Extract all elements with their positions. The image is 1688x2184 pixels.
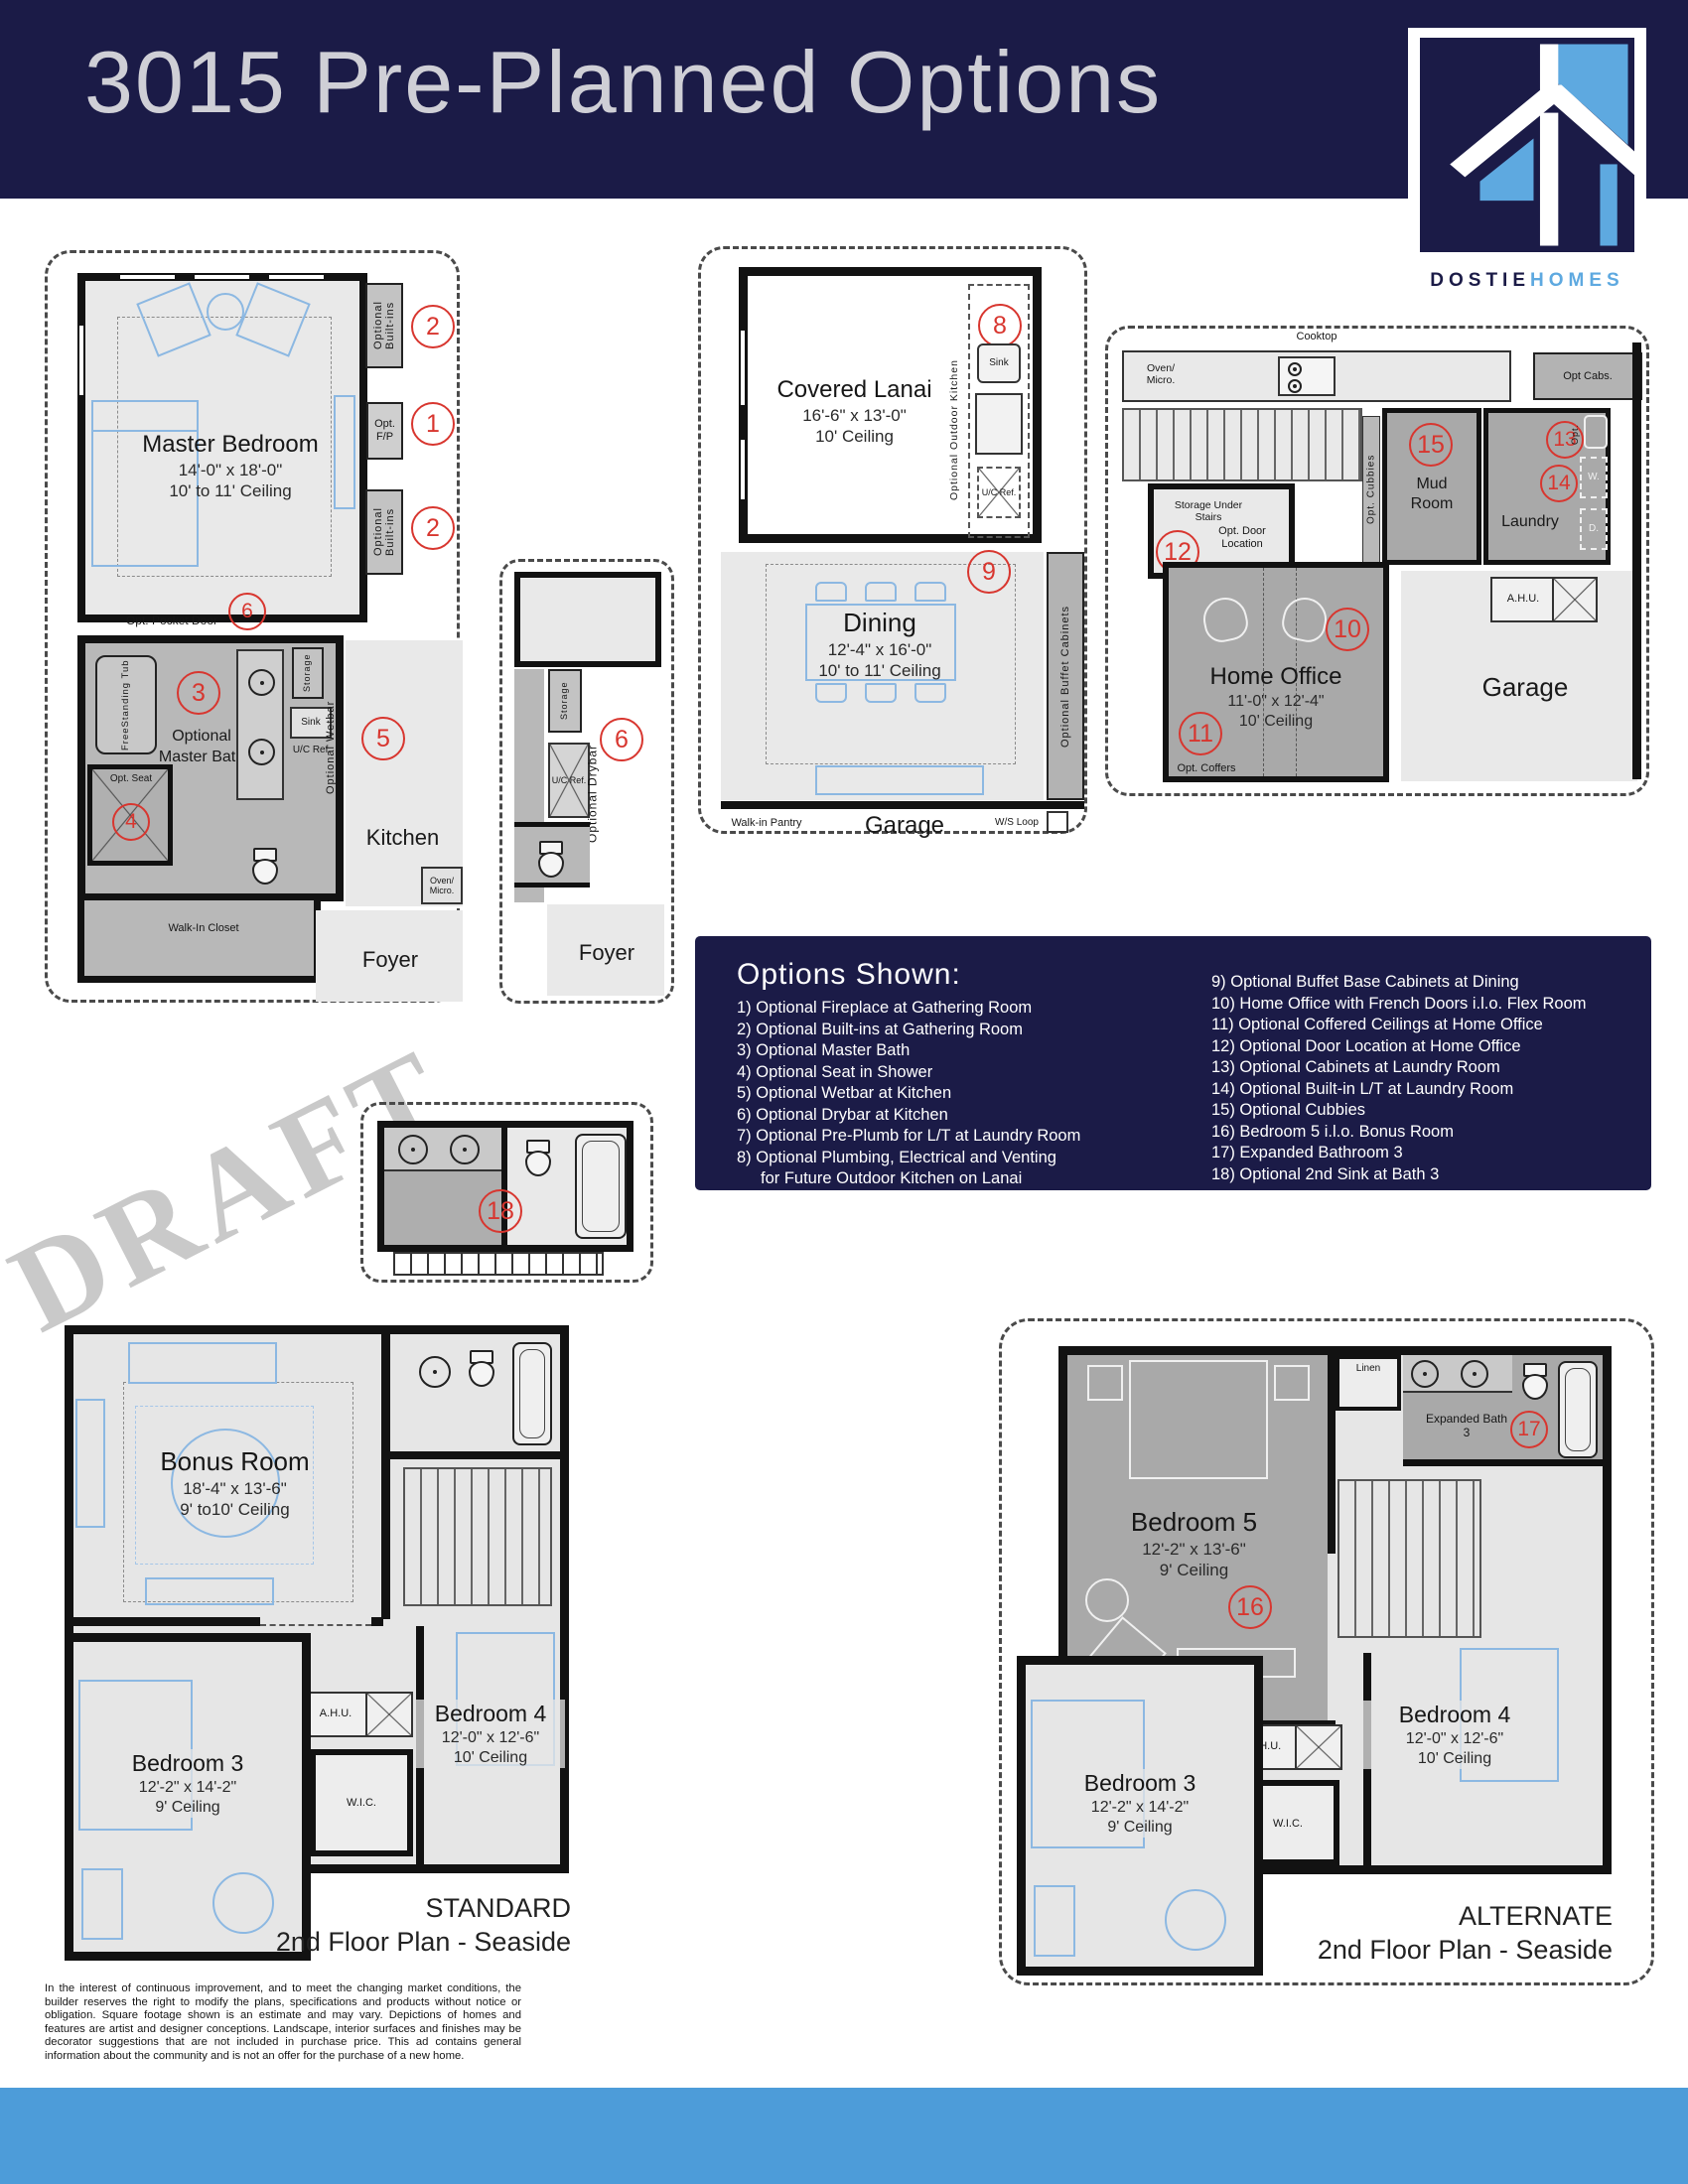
ahu-label: A.H.U. xyxy=(306,1707,365,1720)
laundry-label: Laundry xyxy=(1488,512,1572,532)
opt-cabs: Opt Cabs. xyxy=(1533,352,1642,400)
opt-door-location-label: Opt. Door Location xyxy=(1207,525,1277,550)
wic-room: W.I.C. xyxy=(310,1749,413,1856)
toilet xyxy=(469,1350,492,1386)
option-item: 4) Optional Seat in Shower xyxy=(737,1062,1080,1084)
footer-bar xyxy=(0,2088,1688,2184)
wall xyxy=(381,1334,390,1619)
wall xyxy=(1328,1355,1336,1554)
room-dims: 12'-2" x 14'-2" xyxy=(83,1778,292,1798)
opt-coffers-label: Opt. Coffers xyxy=(1175,762,1238,775)
plan-master-suite: Master Bedroom 14'-0" x 18'-0" 10' to 11… xyxy=(45,250,460,1003)
option-badge-4: 4 xyxy=(112,803,150,841)
window xyxy=(120,273,175,281)
window xyxy=(739,440,747,499)
room-dims: 12'-0" x 12'-6" xyxy=(416,1728,565,1748)
option-item: 11) Optional Coffered Ceilings at Home O… xyxy=(1211,1015,1587,1036)
dining-label: Dining 12'-4" x 16'-0" 10' to 11' Ceilin… xyxy=(780,607,979,681)
window xyxy=(739,331,747,405)
bedroom5-label: Bedroom 5 12'-2" x 13'-6" 9' Ceiling xyxy=(1082,1506,1306,1580)
option-badge-6: 6 xyxy=(600,718,643,761)
mud-room-label: Mud Room xyxy=(1397,475,1467,514)
option-badge-3: 3 xyxy=(177,671,220,715)
room-ceiling: 10' to 11' Ceiling xyxy=(93,480,367,501)
outdoor-sink-box: Sink xyxy=(977,343,1021,383)
stairs xyxy=(1122,408,1362,481)
room-dims: 12'-0" x 12'-6" xyxy=(1355,1729,1554,1749)
storage-cabinet: Storage xyxy=(292,647,324,699)
alternate-caption: ALTERNATE 2nd Floor Plan - Seaside xyxy=(1205,1899,1613,1967)
option-item: 3) Optional Master Bath xyxy=(737,1040,1080,1062)
stairs xyxy=(1337,1479,1481,1638)
option-item: 14) Optional Built-in L/T at Laundry Roo… xyxy=(1211,1079,1587,1101)
room-name: Bedroom 4 xyxy=(1355,1701,1554,1729)
option-item: 17) Expanded Bathroom 3 xyxy=(1211,1143,1587,1164)
caption-line2: 2nd Floor Plan - Seaside xyxy=(169,1925,571,1959)
window xyxy=(269,273,324,281)
walk-in-closet-room: Walk-In Closet xyxy=(77,893,321,983)
optional-wetbar-label: Optional Wetbar xyxy=(324,663,338,832)
desk xyxy=(1034,1885,1075,1957)
option-badge-14: 14 xyxy=(1540,465,1578,502)
plan-home-office: Cooktop Oven/ Micro. Opt Cabs. Storage U… xyxy=(1105,326,1649,796)
ahu-xbox xyxy=(1295,1726,1340,1768)
room-dims: 12'-2" x 14'-2" xyxy=(1036,1798,1244,1818)
room-dims: 18'-4" x 13'-6" xyxy=(108,1478,361,1499)
plan-bath3-option: 18 xyxy=(360,1102,653,1283)
option-badge-2b: 2 xyxy=(411,506,455,550)
option-badge-18: 18 xyxy=(479,1189,522,1233)
upper-room xyxy=(514,572,661,667)
room-dims: 12'-2" x 13'-6" xyxy=(1082,1539,1306,1560)
burner xyxy=(1288,362,1302,376)
room-dims: 14'-0" x 18'-0" xyxy=(93,460,367,480)
option-badge-11: 11 xyxy=(1179,712,1222,755)
room-name: Bedroom 3 xyxy=(83,1749,292,1778)
ahu-unit: A.H.U. xyxy=(302,1692,413,1737)
bed xyxy=(1129,1360,1268,1479)
foyer-label: Foyer xyxy=(331,946,450,974)
covered-lanai-room: 8 Covered Lanai 16'-6" x 13'-0" 10' Ceil… xyxy=(739,267,1042,543)
option-item: 15) Optional Cubbies xyxy=(1211,1100,1587,1122)
outdoor-uc-ref: U/C Ref. xyxy=(977,467,1021,518)
ahu-xbox xyxy=(365,1694,411,1735)
option-item: 5) Optional Wetbar at Kitchen xyxy=(737,1083,1080,1105)
plan-standard-2nd-floor: Bonus Room 18'-4" x 13'-6" 9' to10' Ceil… xyxy=(65,1320,576,1980)
chair xyxy=(914,582,946,602)
sink-basin xyxy=(1411,1360,1439,1388)
opt-cubbies-strip: Opt. Cubbies xyxy=(1362,416,1380,563)
bathtub xyxy=(575,1134,627,1239)
cooktop-label: Cooktop xyxy=(1257,331,1376,343)
option-item: 9) Optional Buffet Base Cabinets at Dini… xyxy=(1211,972,1587,994)
window xyxy=(195,273,249,281)
room-name: Dining xyxy=(780,607,979,639)
sofa xyxy=(75,1399,105,1528)
toilet xyxy=(525,1140,549,1175)
optional-outdoor-kitchen-label: Optional Outdoor Kitchen xyxy=(948,341,962,519)
standard-caption: STANDARD 2nd Floor Plan - Seaside xyxy=(169,1891,571,1959)
bedroom4-label: Bedroom 4 12'-0" x 12'-6" 10' Ceiling xyxy=(1355,1701,1554,1769)
dh-monogram-icon xyxy=(1420,38,1634,252)
shower: Opt. Seat 4 xyxy=(87,764,173,866)
option-badge-17: 17 xyxy=(1510,1411,1548,1448)
bathtub xyxy=(1558,1361,1598,1458)
option-item: 8) Optional Plumbing, Electrical and Ven… xyxy=(737,1148,1080,1169)
cooktop-box xyxy=(1278,356,1336,396)
caption-line1: STANDARD xyxy=(169,1891,571,1925)
dostie-homes-logo: DOSTIEHOMES xyxy=(1408,28,1646,298)
wall xyxy=(1632,342,1641,779)
uc-ref-box: U/C Ref. xyxy=(548,743,590,818)
chair xyxy=(865,582,897,602)
dryer: D. xyxy=(1580,508,1608,550)
caption-line1: ALTERNATE xyxy=(1205,1899,1613,1933)
nightstand xyxy=(1087,1365,1123,1401)
page: 3015 Pre-Planned Options DOSTIEHOMES xyxy=(0,0,1688,2184)
window xyxy=(77,326,85,395)
option-item: 13) Optional Cabinets at Laundry Room xyxy=(1211,1057,1587,1079)
foyer-label: Foyer xyxy=(557,939,656,967)
desk xyxy=(81,1868,123,1940)
sink-basin xyxy=(1461,1360,1488,1388)
bath3-room: 18 xyxy=(377,1121,633,1252)
opt-fireplace-box: Opt. F/P xyxy=(366,402,403,460)
chair xyxy=(815,582,847,602)
master-bedroom-room: Master Bedroom 14'-0" x 18'-0" 10' to 11… xyxy=(77,273,367,622)
brand-dostie: DOSTIE xyxy=(1430,270,1530,291)
room-ceiling: 10' Ceiling xyxy=(748,426,961,447)
covered-lanai-label: Covered Lanai 16'-6" x 13'-0" 10' Ceilin… xyxy=(748,375,961,448)
wic-label: W.I.C. xyxy=(328,1797,395,1810)
oven-micro-box: Oven/ Micro. xyxy=(421,867,463,904)
plan-lanai-dining: 8 Covered Lanai 16'-6" x 13'-0" 10' Ceil… xyxy=(698,246,1087,834)
mud-room: 15 Mud Room xyxy=(1382,408,1481,565)
sink-basin xyxy=(248,669,275,696)
opt-pocket-door-label: Opt. Pocket Door xyxy=(117,614,226,628)
bedroom4-label: Bedroom 4 12'-0" x 12'-6" 10' Ceiling xyxy=(416,1700,565,1768)
option-item: 6) Optional Drybar at Kitchen xyxy=(737,1105,1080,1127)
washer: W. xyxy=(1580,457,1608,498)
caption-line2: 2nd Floor Plan - Seaside xyxy=(1205,1933,1613,1967)
room-name: Home Office xyxy=(1169,662,1383,692)
chair xyxy=(815,683,847,703)
ahu-xbox xyxy=(1552,579,1596,620)
ahu-label: A.H.U. xyxy=(1494,593,1552,606)
chair xyxy=(914,683,946,703)
option-badge-6: 6 xyxy=(228,593,266,630)
ws-loop-box xyxy=(1047,811,1068,833)
ahu-unit: A.H.U. xyxy=(1490,577,1598,622)
stairs xyxy=(403,1467,552,1606)
expanded-bath3-room: Expanded Bath 3 17 xyxy=(1403,1355,1603,1466)
stairs-strip xyxy=(393,1252,604,1276)
option-badge-9: 9 xyxy=(967,550,1011,594)
option-badge-1: 1 xyxy=(411,402,455,446)
brand-wordmark: DOSTIEHOMES xyxy=(1408,270,1646,292)
sofa xyxy=(128,1342,277,1384)
chair xyxy=(1199,594,1251,645)
master-bedroom-label: Master Bedroom 14'-0" x 18'-0" 10' to 11… xyxy=(93,430,367,502)
chair xyxy=(865,683,897,703)
option-badge-10: 10 xyxy=(1326,608,1369,651)
optional-buffet-cabinets: Optional Buffet Cabinets xyxy=(1047,552,1084,800)
linen-closet: Linen xyxy=(1336,1355,1401,1411)
home-office-room: 10 Home Office 11'-0" x 12'-4" 10' Ceili… xyxy=(1163,562,1389,782)
toilet xyxy=(1522,1363,1546,1399)
option-item-continuation: for Future Outdoor Kitchen on Lanai xyxy=(737,1168,1080,1190)
page-title: 3015 Pre-Planned Options xyxy=(84,32,1162,133)
sofa xyxy=(815,765,984,795)
sink-basin xyxy=(419,1356,451,1388)
option-item: 10) Home Office with French Doors i.l.o.… xyxy=(1211,994,1587,1016)
wic-label: W.I.C. xyxy=(1254,1818,1322,1831)
opt-seat-label: Opt. Seat xyxy=(96,773,166,785)
room-name: Bedroom 4 xyxy=(416,1700,565,1728)
linen-label: Linen xyxy=(1343,1363,1393,1375)
storage-cabinet: Storage xyxy=(548,669,582,733)
option-item: 2) Optional Built-ins at Gathering Room xyxy=(737,1020,1080,1041)
bedroom3-label: Bedroom 3 12'-2" x 14'-2" 9' Ceiling xyxy=(83,1749,292,1818)
option-badge-2: 2 xyxy=(411,305,455,348)
burner xyxy=(1288,379,1302,393)
option-badge-16: 16 xyxy=(1228,1585,1272,1629)
bonus-room-label: Bonus Room 18'-4" x 13'-6" 9' to10' Ceil… xyxy=(108,1445,361,1520)
room-ceiling: 10' Ceiling xyxy=(416,1748,565,1768)
laundry-tub xyxy=(1584,415,1608,449)
toilet xyxy=(538,841,562,877)
bedroom3-label: Bedroom 3 12'-2" x 14'-2" 9' Ceiling xyxy=(1036,1769,1244,1838)
round-table xyxy=(207,293,244,331)
outdoor-kitchen-column: Sink U/C Ref. xyxy=(968,284,1030,538)
garage-label: Garage xyxy=(825,811,984,841)
wall xyxy=(390,1451,560,1459)
vanity-half xyxy=(384,1128,501,1245)
wall xyxy=(721,801,1084,809)
toilet xyxy=(252,848,276,884)
room-dims: 12'-4" x 16'-0" xyxy=(780,639,979,660)
options-list-right: 9) Optional Buffet Base Cabinets at Dini… xyxy=(1211,972,1587,1185)
kitchen-counter: Oven/ Micro. xyxy=(1122,350,1511,402)
opt-lt-label: Opt. xyxy=(1570,417,1582,451)
room-name: Master Bedroom xyxy=(93,430,367,460)
room-name: Bonus Room xyxy=(108,1445,361,1478)
walk-in-closet-label: Walk-In Closet xyxy=(144,922,263,935)
room-dims: 11'-0" x 12'-4" xyxy=(1169,692,1383,712)
master-bath-room: FreeStanding Tub 3 Optional Master Bath … xyxy=(77,635,344,901)
sink-basin xyxy=(248,739,275,765)
storage-under-stairs-label: Storage Under Stairs xyxy=(1174,499,1243,523)
chair xyxy=(1279,594,1331,645)
option-item: 7) Optional Pre-Plumb for L/T at Laundry… xyxy=(737,1126,1080,1148)
room-ceiling: 9' Ceiling xyxy=(1036,1818,1244,1838)
disclaimer-text: In the interest of continuous improvemen… xyxy=(45,1982,521,2064)
media-console xyxy=(145,1577,274,1605)
walk-in-pantry-label: Walk-in Pantry xyxy=(725,817,808,830)
room-name: Bedroom 5 xyxy=(1082,1506,1306,1539)
room-ceiling: 9' Ceiling xyxy=(83,1798,292,1818)
options-panel-title: Options Shown: xyxy=(737,958,961,992)
nightstand xyxy=(1274,1365,1310,1401)
plan-alternate-2nd-floor: Bedroom 5 12'-2" x 13'-6" 9' Ceiling 16 … xyxy=(999,1318,1654,1985)
double-vanity xyxy=(236,649,284,800)
room-name: Covered Lanai xyxy=(748,375,961,405)
oven-micro-label: Oven/ Micro. xyxy=(1132,362,1190,386)
room-ceiling: 10' to 11' Ceiling xyxy=(780,660,979,681)
ws-loop-label: W/S Loop xyxy=(991,817,1043,829)
optional-built-ins-bottom: Optional Built-ins xyxy=(365,489,403,575)
plan-drybar-option: Storage U/C Ref. Optional Drybar 6 Foyer xyxy=(499,559,674,1004)
option-item: 1) Optional Fireplace at Gathering Room xyxy=(737,998,1080,1020)
sink-basin xyxy=(398,1135,428,1164)
optional-built-ins-top: Optional Built-ins xyxy=(365,283,403,368)
option-item: 12) Optional Door Location at Home Offic… xyxy=(1211,1036,1587,1058)
room-dims: 16'-6" x 13'-0" xyxy=(748,405,961,426)
option-badge-15: 15 xyxy=(1409,423,1453,467)
option-item: 16) Bedroom 5 i.l.o. Bonus Room xyxy=(1211,1122,1587,1144)
option-badge-5: 5 xyxy=(361,717,405,760)
options-list-left: 1) Optional Fireplace at Gathering Room … xyxy=(737,998,1080,1190)
door-opening xyxy=(260,1617,371,1626)
room-ceiling: 9' to10' Ceiling xyxy=(108,1499,361,1520)
powder-room xyxy=(514,822,590,887)
laundry-room: 13 14 Laundry Opt. W. D. xyxy=(1483,408,1611,565)
room-name: Bedroom 3 xyxy=(1036,1769,1244,1798)
outdoor-grill xyxy=(975,393,1023,455)
brand-homes: HOMES xyxy=(1530,270,1624,291)
options-panel: Options Shown: 1) Optional Fireplace at … xyxy=(695,936,1651,1190)
option-item: 18) Optional 2nd Sink at Bath 3 xyxy=(1211,1164,1587,1186)
bathtub xyxy=(512,1342,552,1445)
room-ceiling: 10' Ceiling xyxy=(1355,1749,1554,1769)
room-ceiling: 9' Ceiling xyxy=(1082,1560,1306,1580)
expanded-bath3-label: Expanded Bath 3 xyxy=(1421,1413,1512,1440)
garage-label: Garage xyxy=(1446,671,1605,704)
sink-basin xyxy=(450,1135,480,1164)
kitchen-label: Kitchen xyxy=(341,824,465,852)
